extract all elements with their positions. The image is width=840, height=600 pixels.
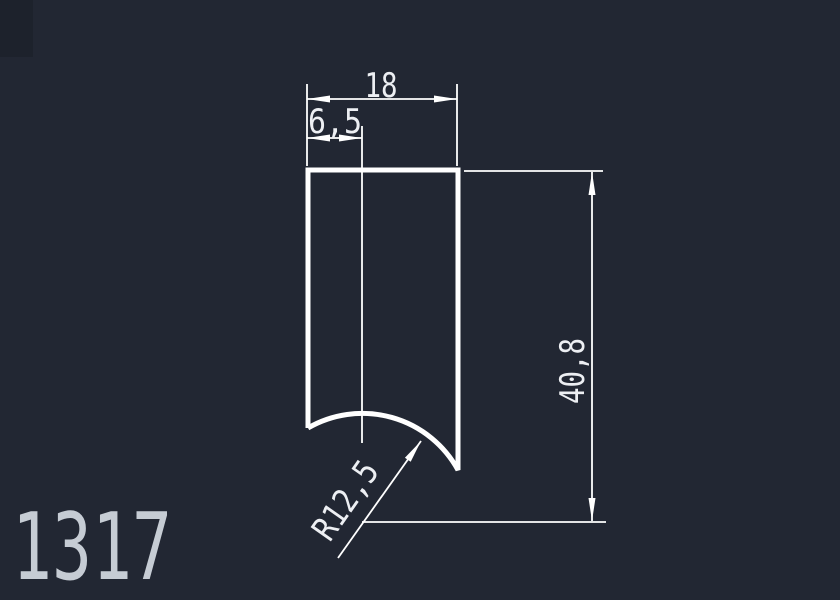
dimension-value-total-width: 18 <box>365 66 398 106</box>
drawing-canvas: 18 6,5 40,8 R12,5 1317 <box>0 0 840 600</box>
dimension-value-total-height: 40,8 <box>553 338 593 404</box>
cad-viewport: 18 6,5 40,8 R12,5 1317 <box>0 0 840 600</box>
corner-shade <box>0 0 33 57</box>
part-number-label: 1317 <box>12 493 172 600</box>
dimension-value-offset-width: 6,5 <box>308 102 362 142</box>
